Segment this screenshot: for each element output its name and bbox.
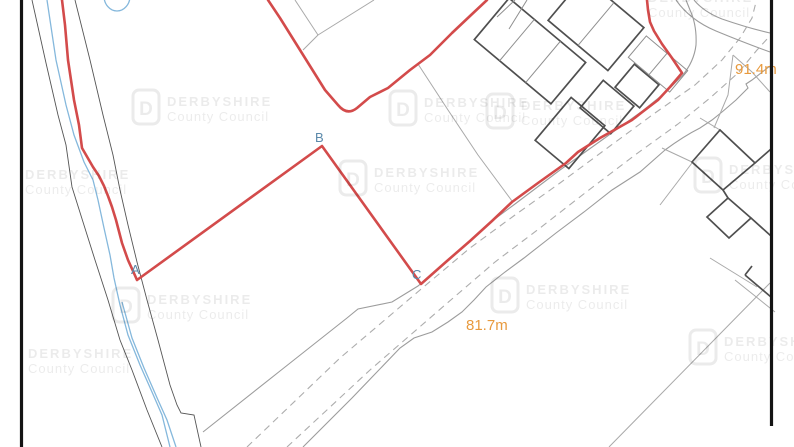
- watermark-text-line1: DERBYSHIRE: [25, 167, 130, 182]
- building-connector-lines: [497, 0, 527, 29]
- watermark-text-line2: County Council: [729, 177, 794, 192]
- east-building-2: [707, 198, 751, 238]
- watermark-text-line1: DERBYSHIRE: [724, 334, 794, 349]
- watermark-text-line1: DERBYSHIRE: [374, 165, 479, 180]
- pond-outline: [104, 0, 130, 11]
- watermark-logo-letter: D: [139, 99, 153, 120]
- farm-building-2: [548, 0, 644, 71]
- stream-bank-left: [32, 0, 162, 447]
- watermark-tile: DDERBYSHIRECounty Council: [113, 288, 252, 322]
- watermark-tile: DDERBYSHIRECounty Council: [695, 158, 794, 192]
- watermark-tile: DDERBYSHIRECounty Council: [390, 91, 529, 125]
- watermark-text-line2: County Council: [167, 109, 269, 124]
- watermark-tile: DDERBYSHIRECounty Council: [133, 90, 272, 124]
- watermark-text-line1: DERBYSHIRE: [167, 94, 272, 109]
- field-line-right-lower: [710, 258, 757, 287]
- driveway-edge-1: [662, 148, 692, 162]
- farm-building-1: [474, 0, 585, 104]
- watermark-text-line2: County Council: [424, 110, 526, 125]
- spot-height-81: 81.7m: [466, 317, 508, 334]
- stream-water-line: [47, 0, 170, 447]
- watermark-text-line1: DERBYSHIRE: [147, 292, 252, 307]
- vertex-label-b: B: [315, 130, 324, 145]
- vertex-labels: A B C: [131, 130, 421, 282]
- watermark-text-line1: DERBYSHIRE: [526, 282, 631, 297]
- buildings: [474, 0, 771, 297]
- road-edge-upper: [203, 0, 696, 432]
- watermark-logo-letter: D: [396, 100, 410, 121]
- watermark-layer: DDERBYSHIRECounty CouncilDDERBYSHIRECoun…: [25, 0, 794, 376]
- watermark-text-line2: County Council: [374, 180, 476, 195]
- watermark-logo-letter: D: [696, 339, 710, 360]
- watermark-text-line2: County Council: [648, 5, 750, 20]
- watermark-logo-letter: D: [498, 287, 512, 308]
- watermark-text-line2: County Council: [724, 349, 794, 364]
- watermark-logo-letter: D: [701, 167, 715, 188]
- watermark-tile: DERBYSHIRECounty Council: [648, 0, 753, 20]
- site-boundary-main: [62, 0, 682, 284]
- watermark-tile: DERBYSHIRECounty Council: [25, 167, 130, 197]
- field-line-top: [295, 0, 374, 50]
- site-boundary: [62, 0, 682, 284]
- watermark-tile: DDERBYSHIRECounty Council: [492, 278, 631, 312]
- road: [203, 0, 770, 447]
- watermark-tile: DERBYSHIRECounty Council: [28, 346, 133, 376]
- watermark-text-line1: DERBYSHIRE: [521, 98, 626, 113]
- field-line-beside-building: [660, 163, 692, 205]
- watermark-tile: DDERBYSHIRECounty Council: [340, 161, 479, 195]
- field-boundaries: [295, 0, 775, 447]
- watermark-text-line2: County Council: [25, 182, 127, 197]
- watermark-text-line2: County Council: [147, 307, 249, 322]
- vertex-label-a: A: [131, 262, 140, 277]
- watermark-logo-letter: D: [119, 297, 133, 318]
- watermark-logo-letter: D: [493, 103, 507, 124]
- watermark-tile: DDERBYSHIRECounty Council: [690, 330, 794, 364]
- watermark-text-line2: County Council: [526, 297, 628, 312]
- watermark-logo-letter: D: [346, 170, 360, 191]
- vertex-label-c: C: [412, 267, 421, 282]
- watermark-text-line2: County Council: [28, 361, 130, 376]
- site-plan-map: A B C DDERBYSHIRECounty CouncilDDERBYSHI…: [0, 0, 794, 447]
- field-line-bottom-right: [609, 283, 770, 447]
- watermark-text-line2: County Council: [521, 113, 623, 128]
- watermark-text-line1: DERBYSHIRE: [28, 346, 133, 361]
- watermark-text-line1: DERBYSHIRE: [729, 162, 794, 177]
- stream-bank-right: [75, 0, 201, 447]
- map-borders: [22, 0, 772, 447]
